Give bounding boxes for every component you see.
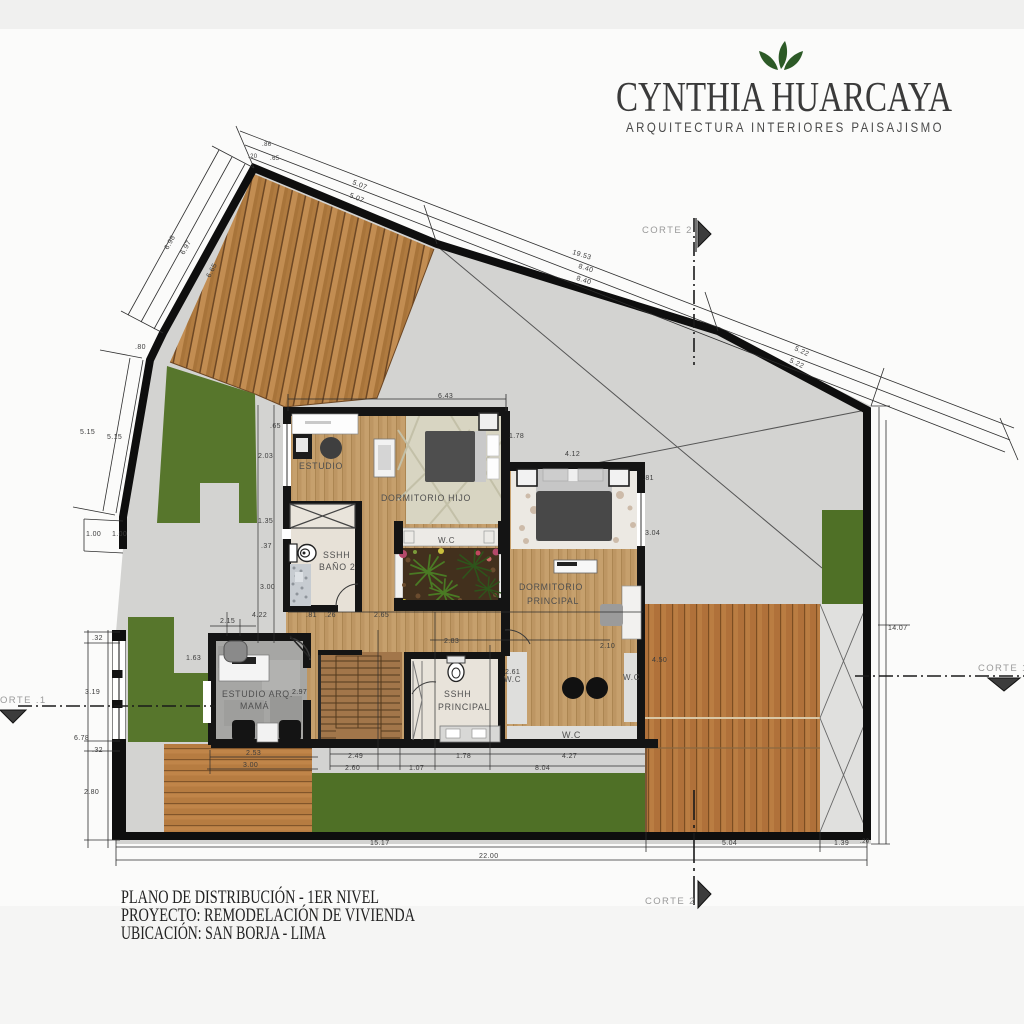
svg-text:DORMITORIO: DORMITORIO (519, 582, 583, 592)
svg-text:1.78: 1.78 (509, 433, 524, 440)
svg-text:22.00: 22.00 (479, 853, 499, 860)
svg-text:3.00: 3.00 (260, 584, 275, 591)
svg-text:2.60: 2.60 (345, 765, 360, 772)
svg-text:2.03: 2.03 (258, 453, 273, 460)
svg-text:.32: .32 (92, 747, 103, 754)
svg-text:4.12: 4.12 (565, 451, 580, 458)
svg-text:ARQUITECTURA INTERIORES PAIS: ARQUITECTURA INTERIORES PAISAJISMO (626, 119, 944, 135)
svg-text:.26: .26 (325, 612, 336, 619)
svg-text:6.78: 6.78 (74, 735, 89, 742)
svg-text:4.22: 4.22 (252, 612, 267, 619)
svg-text:3.04: 3.04 (645, 530, 660, 537)
svg-text:.80: .80 (135, 344, 146, 351)
svg-text:.86: .86 (262, 142, 272, 148)
svg-text:1.63: 1.63 (186, 655, 201, 662)
svg-text:2.61: 2.61 (505, 669, 520, 676)
svg-text:2.49: 2.49 (348, 753, 363, 760)
svg-text:.65: .65 (270, 423, 281, 430)
svg-text:1.07: 1.07 (409, 765, 424, 772)
svg-text:14.07: 14.07 (888, 625, 908, 632)
svg-text:4.50: 4.50 (652, 657, 667, 664)
svg-text:DORMITORIO HIJO: DORMITORIO HIJO (381, 493, 471, 503)
svg-text:2.80: 2.80 (84, 789, 99, 796)
svg-text:1.78: 1.78 (456, 753, 471, 760)
svg-text:.37: .37 (261, 543, 272, 550)
svg-text:SSHH: SSHH (323, 550, 350, 560)
svg-text:.81: .81 (306, 612, 317, 619)
svg-text:2.65: 2.65 (374, 612, 389, 619)
svg-text:1.00: 1.00 (112, 531, 127, 538)
svg-text:PRINCIPAL: PRINCIPAL (438, 702, 490, 712)
svg-text:5.04: 5.04 (722, 840, 737, 847)
svg-text:15.17: 15.17 (370, 840, 390, 847)
svg-text:CYNTHIA HUARCAYA: CYNTHIA HUARCAYA (616, 75, 953, 121)
svg-text:2.15: 2.15 (220, 618, 235, 625)
svg-text:1.35: 1.35 (258, 518, 273, 525)
svg-text:.32: .32 (92, 635, 103, 642)
svg-text:.20: .20 (248, 154, 258, 160)
svg-text:UBICACIÓN: SAN BORJA - LIMA: UBICACIÓN: SAN BORJA - LIMA (121, 922, 326, 944)
svg-text:6.43: 6.43 (438, 393, 453, 400)
svg-text:.20: .20 (860, 839, 870, 845)
svg-text:3.19: 3.19 (85, 689, 100, 696)
svg-text:MAMÁ: MAMÁ (240, 701, 269, 711)
svg-text:CORTE 2: CORTE 2 (645, 896, 696, 907)
svg-text:W.C: W.C (562, 730, 581, 740)
svg-text:8.04: 8.04 (535, 765, 550, 772)
svg-text:4.27: 4.27 (562, 753, 577, 760)
svg-text:CORTE 2: CORTE 2 (642, 225, 693, 236)
svg-text:SSHH: SSHH (444, 689, 471, 699)
svg-text:2.10: 2.10 (600, 643, 615, 650)
svg-text:1.00: 1.00 (86, 531, 101, 538)
svg-text:.81: .81 (643, 475, 654, 482)
svg-text:3.00: 3.00 (243, 762, 258, 769)
svg-text:5.15: 5.15 (107, 434, 122, 441)
svg-text:W.C: W.C (504, 675, 521, 684)
svg-text:1.39: 1.39 (834, 840, 849, 847)
svg-text:ESTUDIO ARQ.: ESTUDIO ARQ. (222, 689, 293, 699)
svg-text:.65: .65 (270, 156, 280, 162)
svg-text:BAÑO 2: BAÑO 2 (319, 562, 355, 572)
svg-text:ESTUDIO: ESTUDIO (299, 461, 343, 471)
svg-text:PRINCIPAL: PRINCIPAL (527, 596, 579, 606)
svg-text:2.83: 2.83 (444, 638, 459, 645)
svg-text:ORTE .1: ORTE .1 (0, 695, 47, 706)
svg-text:W.C: W.C (623, 673, 640, 682)
svg-text:CORTE 1: CORTE 1 (978, 663, 1024, 674)
svg-text:W.C: W.C (438, 536, 455, 545)
svg-text:2.53: 2.53 (246, 750, 261, 757)
svg-text:5.15: 5.15 (80, 429, 95, 436)
svg-text:2.97: 2.97 (292, 689, 307, 696)
